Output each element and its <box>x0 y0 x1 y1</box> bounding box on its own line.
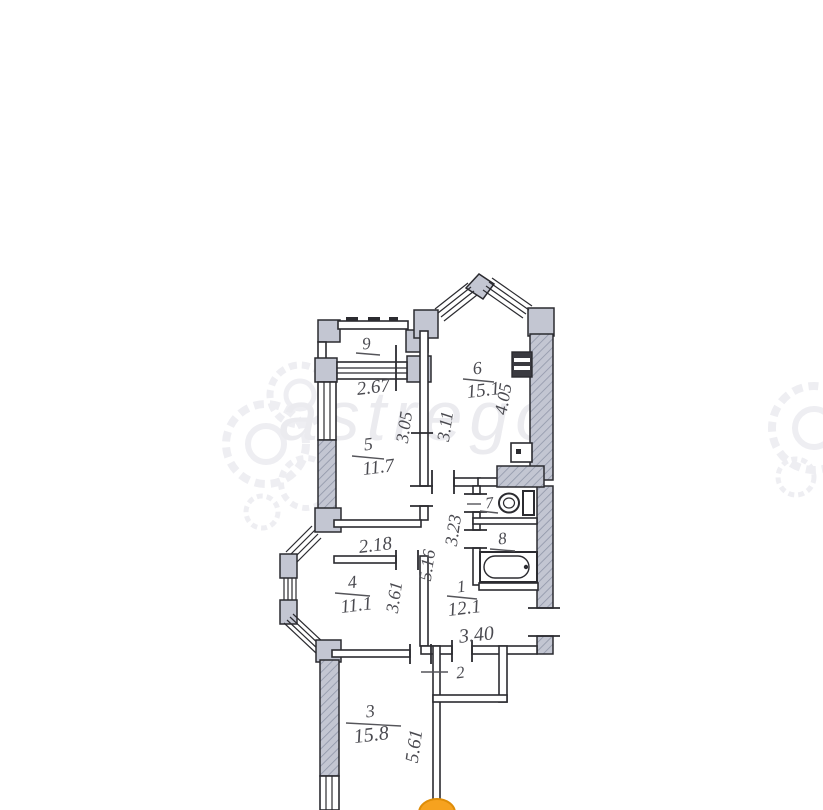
room-3-number: 3 <box>364 701 376 722</box>
room-4-area: 11.1 <box>339 593 373 618</box>
dim-5-16: 5.16 <box>415 548 439 582</box>
dim-2-67: 2.67 <box>356 375 393 400</box>
balcony-9 <box>318 317 428 360</box>
room-3-area: 15.8 <box>353 722 390 748</box>
room-1-number: 1 <box>456 577 467 597</box>
toilet-icon <box>499 491 534 515</box>
dim-3-61: 3.61 <box>382 580 406 615</box>
dim-5-61: 5.61 <box>402 728 427 764</box>
bay-window-room4 <box>280 526 341 662</box>
floor-plan: astrego <box>0 0 823 810</box>
room-6-number: 6 <box>472 358 483 379</box>
dim-3-23: 3.23 <box>441 513 465 548</box>
room-7-number: 7 <box>484 494 495 512</box>
vent-box-icon <box>511 443 532 462</box>
bathtub-icon <box>480 552 537 582</box>
map-pin <box>419 799 455 810</box>
left-exterior-wall-room3 <box>320 660 339 810</box>
dim-2-18: 2.18 <box>358 533 394 558</box>
room-9-number: 9 <box>361 334 372 354</box>
room-2-number: 2 <box>455 663 466 683</box>
room-5-area: 11.7 <box>361 455 397 480</box>
dim-3-40: 3.40 <box>457 622 495 648</box>
room-8-number: 8 <box>497 529 508 549</box>
room-1-area: 12.1 <box>447 596 483 621</box>
bay-window-room6 <box>414 274 554 338</box>
floorplan-image: astrego <box>0 0 823 810</box>
room-4-number: 4 <box>347 572 358 593</box>
vent-duct-icon <box>512 352 532 377</box>
